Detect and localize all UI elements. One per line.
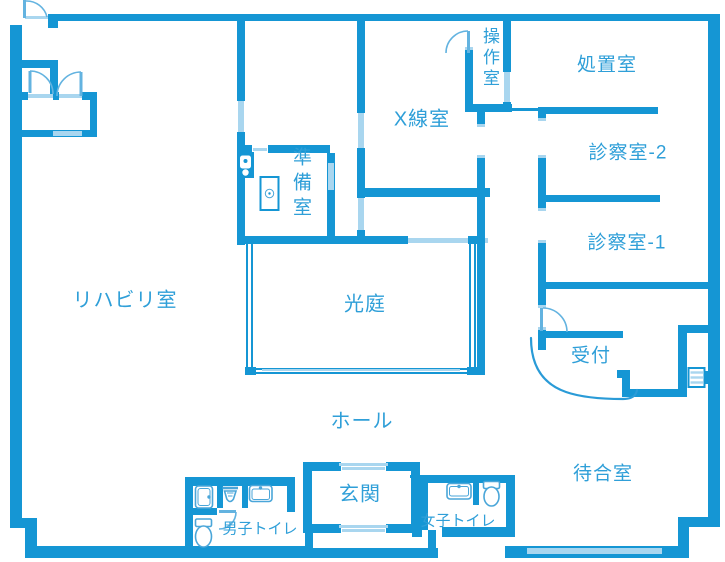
- entry-door-arc-icon: [25, 0, 48, 18]
- door-arc-icon: [446, 31, 469, 53]
- utility-sink-icon: [237, 152, 254, 178]
- room-label-entrance: 玄関: [339, 478, 381, 507]
- room-label-treatment: 処置室: [577, 50, 637, 77]
- sink-icon: [250, 486, 273, 502]
- louver-vent-icon: [689, 368, 705, 387]
- sink-icon: [447, 484, 471, 500]
- room-label-mens-toilet: 男子トイレ: [222, 518, 297, 539]
- room-label-waiting: 待合室: [573, 459, 633, 486]
- room-label-court: 光庭: [344, 288, 386, 317]
- room-label-rehab: リハビリ室: [73, 284, 178, 313]
- room-label-xray: X線室: [394, 103, 450, 132]
- room-label-exam1: 診察室-1: [588, 228, 667, 255]
- room-label-womens-toilet: 女子トイレ: [420, 510, 495, 531]
- room-label-hall: ホール: [331, 405, 394, 434]
- floor-plan: リハビリ室 準備室 X線室 操作室 処置室 診察室-2 診察室-1 光庭 受付 …: [0, 0, 725, 562]
- room-label-control: 操作室: [477, 27, 502, 90]
- room-label-exam2: 診察室-2: [589, 138, 668, 165]
- room-label-prep: 準備室: [287, 147, 314, 222]
- door-arc-icon: [542, 308, 568, 332]
- door-arc-icon: [57, 72, 81, 96]
- urinal-icon: [223, 488, 239, 502]
- room-label-reception: 受付: [571, 341, 611, 368]
- counter-sink-icon: [261, 177, 279, 210]
- sink-icon: [196, 486, 213, 508]
- toilet-icon: [484, 482, 500, 507]
- toilet-icon: [196, 519, 212, 547]
- door-arc-icon: [30, 71, 53, 94]
